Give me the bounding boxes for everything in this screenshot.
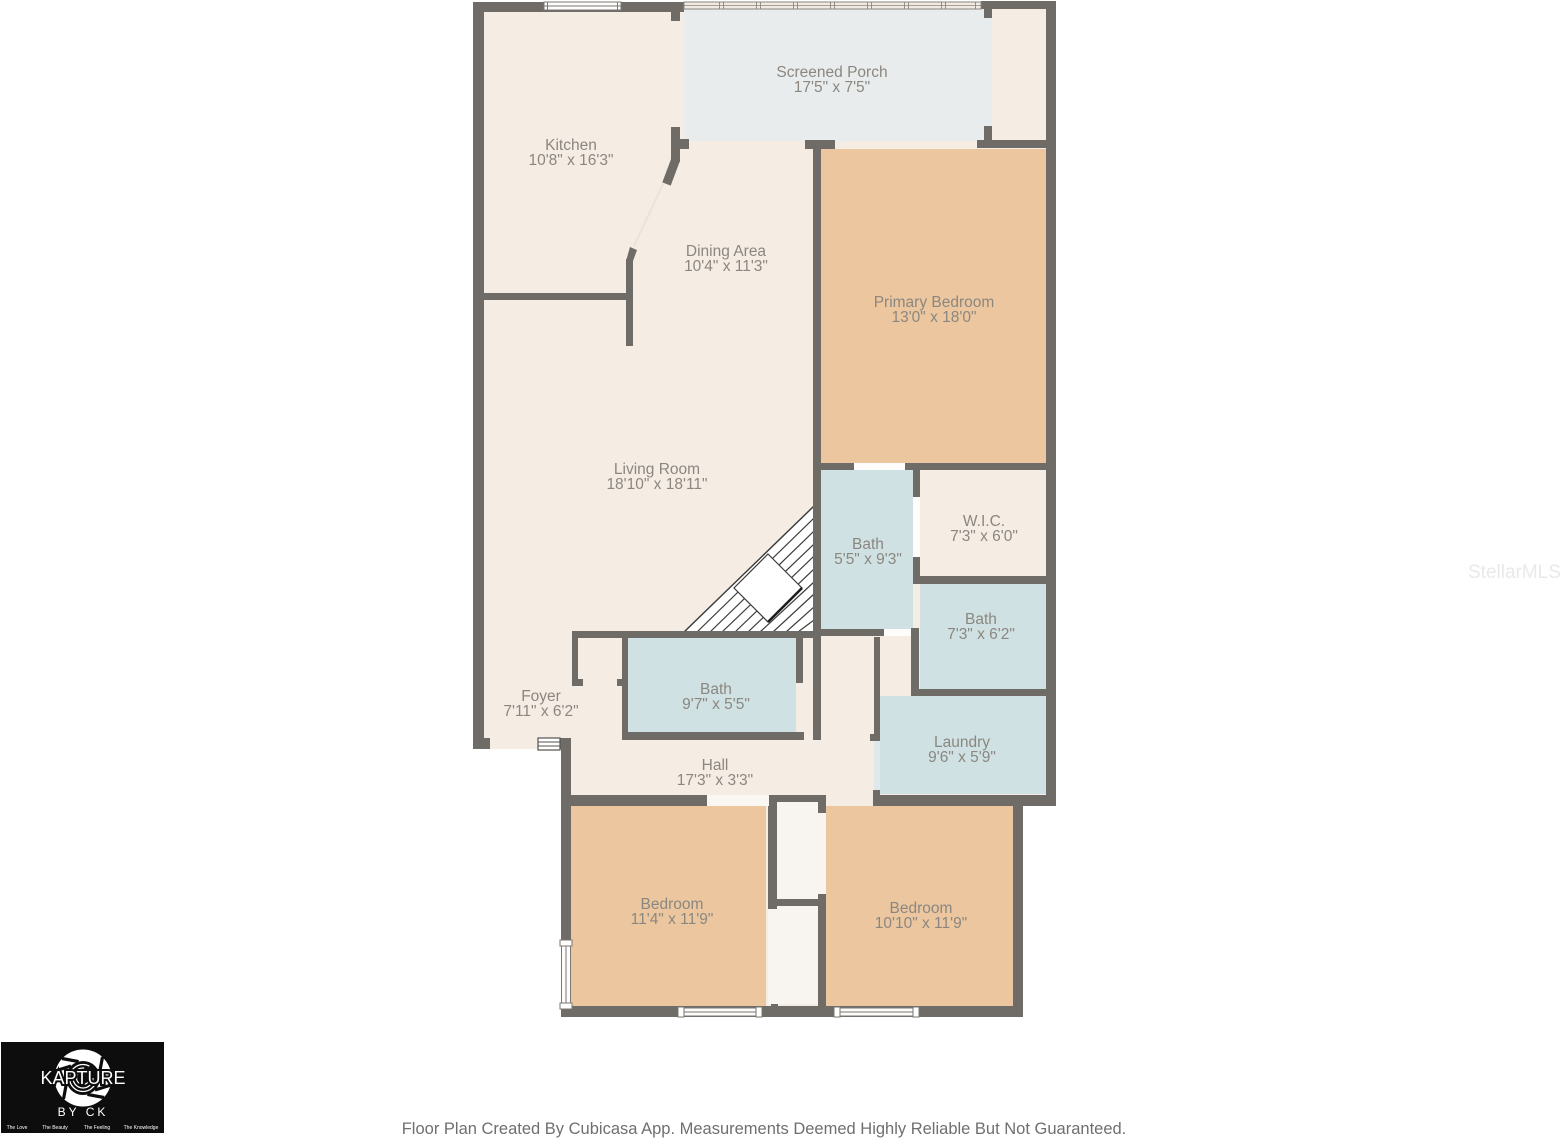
svg-text:The Feeling: The Feeling: [84, 1125, 111, 1131]
svg-text:10'4" x 11'3": 10'4" x 11'3": [684, 258, 768, 275]
svg-text:The Knowledge: The Knowledge: [124, 1125, 159, 1131]
svg-text:9'7" x 5'5": 9'7" x 5'5": [682, 696, 750, 713]
svg-text:18'10" x 18'11": 18'10" x 18'11": [606, 476, 707, 493]
svg-text:KAPTURE: KAPTURE: [40, 1068, 125, 1088]
svg-text:StellarMLS: StellarMLS: [1468, 562, 1561, 583]
svg-text:7'11" x 6'2": 7'11" x 6'2": [503, 703, 578, 720]
svg-text:The Love: The Love: [7, 1125, 28, 1131]
svg-text:10'8" x 16'3": 10'8" x 16'3": [528, 152, 613, 169]
svg-text:9'6" x 5'9": 9'6" x 5'9": [928, 749, 996, 766]
svg-text:7'3" x 6'2": 7'3" x 6'2": [947, 626, 1015, 643]
svg-text:10'10" x 11'9": 10'10" x 11'9": [875, 915, 967, 932]
svg-text:BY CK: BY CK: [58, 1105, 109, 1119]
svg-text:13'0" x 18'0": 13'0" x 18'0": [891, 309, 976, 326]
svg-text:11'4" x 11'9": 11'4" x 11'9": [631, 911, 714, 928]
svg-text:The Beauty: The Beauty: [42, 1125, 68, 1131]
svg-text:5'5" x 9'3": 5'5" x 9'3": [834, 551, 902, 568]
svg-text:7'3" x 6'0": 7'3" x 6'0": [950, 528, 1018, 545]
svg-text:17'3" x 3'3": 17'3" x 3'3": [677, 772, 753, 789]
svg-text:Floor Plan Created By Cubicasa: Floor Plan Created By Cubicasa App. Meas…: [402, 1120, 1127, 1138]
svg-text:17'5" x 7'5": 17'5" x 7'5": [794, 79, 870, 96]
